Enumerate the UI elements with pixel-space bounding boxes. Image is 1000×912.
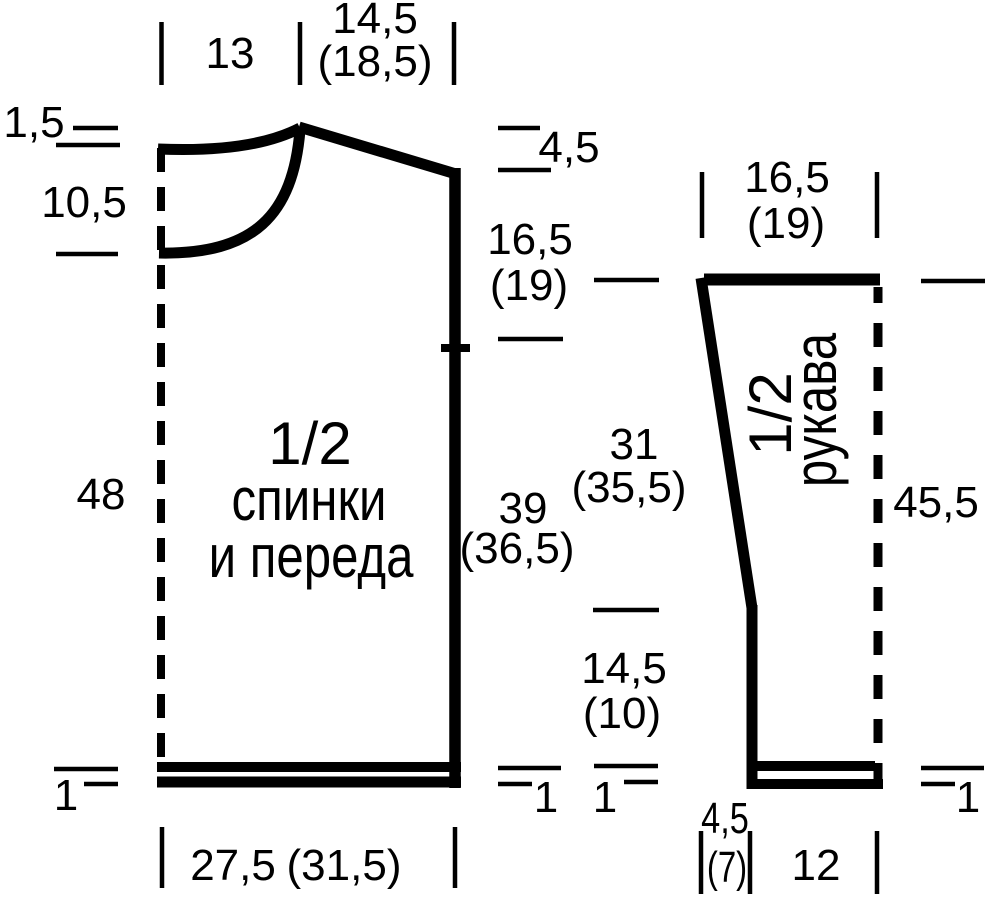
- svg-text:(36,5): (36,5): [460, 524, 575, 573]
- svg-text:рукава: рукава: [781, 332, 849, 487]
- svg-text:4,5: 4,5: [538, 123, 599, 172]
- svg-text:(31,5): (31,5): [287, 841, 402, 890]
- svg-text:10,5: 10,5: [41, 178, 127, 227]
- svg-text:48: 48: [77, 470, 126, 519]
- svg-text:27,5: 27,5: [190, 841, 276, 890]
- svg-text:1: 1: [593, 773, 617, 822]
- svg-text:(10): (10): [583, 689, 661, 738]
- svg-text:13: 13: [206, 29, 255, 78]
- svg-text:(19): (19): [490, 261, 568, 310]
- svg-text:31: 31: [610, 420, 659, 469]
- svg-text:и переда: и переда: [209, 522, 414, 590]
- svg-text:(7): (7): [707, 844, 747, 893]
- svg-text:1,5: 1,5: [3, 98, 64, 147]
- svg-text:4,5: 4,5: [701, 794, 749, 843]
- svg-text:(35,5): (35,5): [572, 463, 687, 512]
- svg-text:14,5: 14,5: [581, 644, 667, 693]
- svg-text:1: 1: [956, 773, 980, 822]
- svg-text:(19): (19): [747, 199, 825, 248]
- svg-text:1: 1: [54, 771, 78, 820]
- svg-text:16,5: 16,5: [487, 215, 573, 264]
- svg-text:45,5: 45,5: [893, 478, 979, 527]
- svg-text:12: 12: [792, 841, 841, 890]
- svg-text:1: 1: [534, 773, 558, 822]
- svg-text:(18,5): (18,5): [318, 37, 433, 86]
- svg-text:16,5: 16,5: [744, 153, 830, 202]
